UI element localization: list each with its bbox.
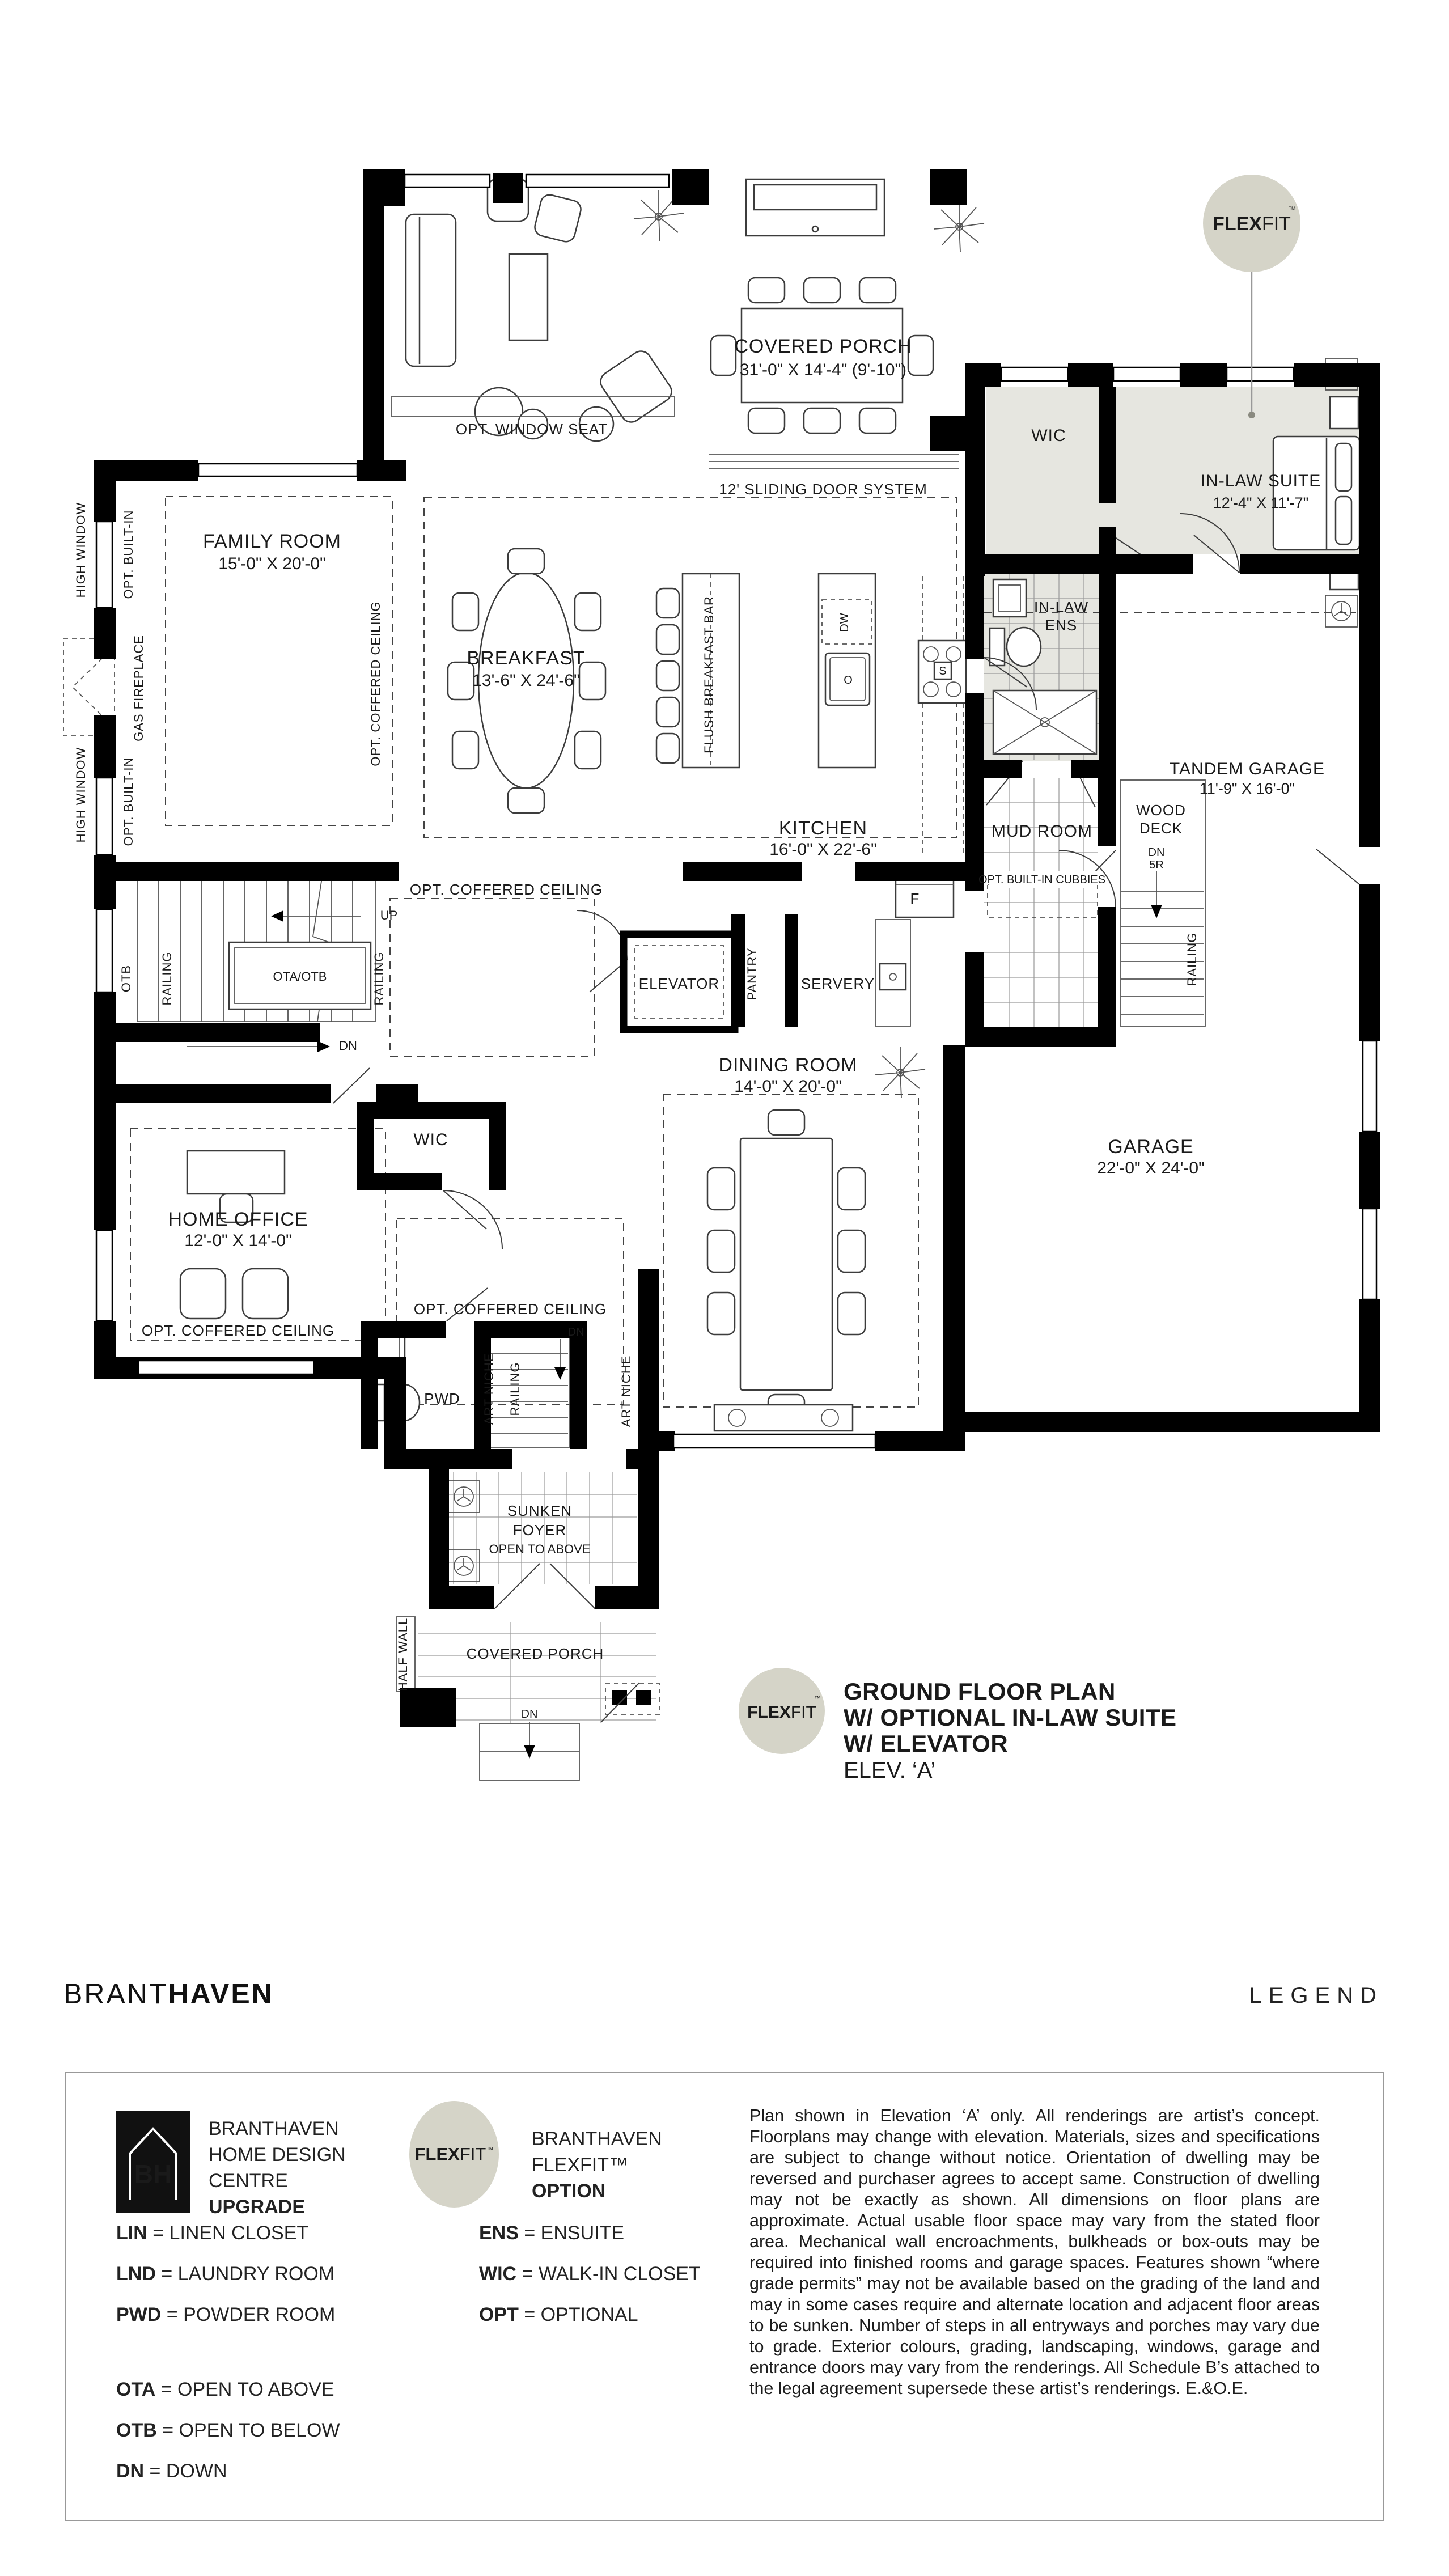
- label-coffered-dining: OPT. COFFERED CEILING: [414, 1300, 607, 1317]
- label-garage: GARAGE: [1108, 1136, 1193, 1158]
- label-in-law-ens-1: IN-LAW: [1034, 599, 1088, 616]
- label-servery: SERVERY: [801, 975, 875, 992]
- label-cubbies: OPT. BUILT-IN CUBBIES: [978, 874, 1105, 886]
- label-elevator: ELEVATOR: [639, 975, 719, 992]
- label-art-niche-2: ART NICHE: [619, 1355, 633, 1427]
- label-mud-room: MUD ROOM: [992, 822, 1092, 841]
- label-dn-porch: DN: [522, 1708, 538, 1721]
- abbr-ens: ENS = ENSUITE: [479, 2222, 624, 2244]
- title-line1: GROUND FLOOR PLAN: [844, 1678, 1116, 1705]
- label-foyer-1: SUNKEN: [507, 1502, 572, 1519]
- label-covered-porch-bottom: COVERED PORCH: [467, 1645, 604, 1662]
- label-flush-breakfast-bar: FLUSH BREAKFAST BAR: [702, 596, 716, 753]
- label-wic-main: WIC: [413, 1130, 448, 1149]
- brand-light: BRANT: [63, 1978, 168, 2010]
- label-railing-deck: RAILING: [1185, 932, 1199, 986]
- label-coffered-hall: OPT. COFFERED CEILING: [410, 881, 603, 898]
- abbr-lnd: LND = LAUNDRY ROOM: [116, 2263, 334, 2285]
- label-deck-5r: 5R: [1149, 859, 1164, 871]
- flexfit-option-line1: BRANTHAVEN: [532, 2126, 662, 2152]
- label-kitchen: KITCHEN: [779, 817, 867, 839]
- dim-garage: 22'-0" X 24'-0": [1097, 1159, 1205, 1177]
- label-gas-fireplace: GAS FIREPLACE: [132, 635, 146, 742]
- abbr-dn: DN = DOWN: [116, 2460, 227, 2482]
- bh-upgrade-label: BRANTHAVEN HOME DESIGN CENTRE UPGRADE: [209, 2116, 346, 2220]
- flexfit-badge-title: FLEXFIT: [747, 1703, 816, 1722]
- bh-upgrade-emphasis: UPGRADE: [209, 2194, 346, 2220]
- dim-dining-room: 14'-0" X 20'-0": [734, 1077, 842, 1096]
- label-pwd: PWD: [424, 1390, 460, 1407]
- label-sliding-door: 12' SLIDING DOOR SYSTEM: [719, 481, 927, 498]
- bh-upgrade-line2: HOME DESIGN: [209, 2142, 346, 2168]
- flexfit-title-tm: ™: [814, 1694, 821, 1702]
- label-pantry: PANTRY: [745, 947, 759, 1000]
- dim-tandem-garage: 11'-9" X 16'-0": [1200, 780, 1295, 797]
- label-opt-built-in-2: OPT. BUILT-IN: [121, 757, 135, 846]
- label-ota-otb: OTA/OTB: [273, 969, 327, 984]
- label-deck-dn: DN: [1149, 846, 1165, 859]
- dim-covered-porch-top: 31'-0" X 14'-4" (9'-10"): [740, 361, 906, 379]
- bh-logo-text: BH: [134, 2159, 172, 2189]
- label-high-window-2: HIGH WINDOW: [74, 747, 88, 843]
- label-in-law-suite: IN-LAW SUITE: [1201, 472, 1321, 490]
- abbr-lin: LIN = LINEN CLOSET: [116, 2222, 308, 2244]
- legal-disclaimer: Plan shown in Elevation ‘A’ only. All re…: [749, 2105, 1320, 2399]
- label-family-room: FAMILY ROOM: [203, 531, 341, 552]
- label-dn-basement: DN: [568, 1326, 584, 1338]
- abbr-wic: WIC = WALK-IN CLOSET: [479, 2263, 701, 2285]
- label-up: UP: [380, 908, 398, 922]
- label-home-office: HOME OFFICE: [168, 1209, 308, 1230]
- label-stove-s: S: [939, 665, 946, 677]
- label-in-law-ens-2: ENS: [1045, 617, 1077, 634]
- dim-breakfast: 13'-6" X 24'-6": [472, 671, 580, 690]
- label-wic-suite: WIC: [1031, 426, 1066, 445]
- label-half-wall: HALF WALL: [396, 1617, 410, 1691]
- label-otb: OTB: [119, 965, 133, 992]
- title-block: FLEXFIT ™ GROUND FLOOR PLAN W/ OPTIONAL …: [739, 1668, 1177, 1783]
- dim-in-law-suite: 12'-4" X 11'-7": [1213, 494, 1309, 511]
- flexfit-legend-tm: ™: [486, 2145, 493, 2154]
- dim-family-room: 15'-0" X 20'-0": [218, 554, 326, 573]
- label-opt-window-seat: OPT. WINDOW SEAT: [456, 421, 608, 438]
- bh-upgrade-line1: BRANTHAVEN: [209, 2116, 346, 2142]
- label-foyer-note: OPEN TO ABOVE: [489, 1542, 591, 1556]
- label-breakfast: BREAKFAST: [467, 647, 585, 669]
- label-wood-deck-1: WOOD: [1136, 802, 1186, 819]
- label-high-window-1: HIGH WINDOW: [74, 502, 88, 598]
- legend-title: LEGEND: [1249, 1983, 1384, 2009]
- abbr-ota: OTA = OPEN TO ABOVE: [116, 2379, 334, 2401]
- flexfit-badge-text: FLEXFIT: [1213, 213, 1291, 235]
- dim-home-office: 12'-0" X 14'-0": [184, 1231, 292, 1250]
- abbr-pwd: PWD = POWDER ROOM: [116, 2304, 335, 2326]
- flexfit-tm: ™: [1288, 205, 1296, 214]
- label-coffered-family: OPT. COFFERED CEILING: [368, 601, 383, 766]
- bh-upgrade-line3: CENTRE: [209, 2168, 346, 2194]
- label-railing-stairs-left: RAILING: [160, 951, 174, 1005]
- title-line3: W/ ELEVATOR: [844, 1730, 1008, 1757]
- porch-entry-steps: [480, 1722, 579, 1780]
- label-dining-room: DINING ROOM: [718, 1054, 857, 1076]
- label-fridge-f: F: [910, 890, 920, 907]
- flexfit-option-label: BRANTHAVEN FLEXFIT™ OPTION: [532, 2126, 662, 2204]
- flexfit-legend-b: FLEX: [415, 2144, 460, 2164]
- floorplan-drawing: FLEXFIT ™ OPT. WINDOW SEAT COVERED PORCH…: [0, 0, 1449, 1831]
- label-tandem-garage: TANDEM GARAGE: [1170, 760, 1325, 778]
- bh-house-icon: BH: [116, 2111, 190, 2213]
- label-dn-stairs: DN: [339, 1039, 357, 1053]
- title-line2: W/ OPTIONAL IN-LAW SUITE: [844, 1704, 1177, 1731]
- abbr-opt: OPT = OPTIONAL: [479, 2304, 638, 2326]
- bh-home-design-logo: BH: [116, 2111, 190, 2213]
- brand-bold: HAVEN: [168, 1978, 273, 2010]
- label-dw: DW: [838, 613, 851, 632]
- flexfit-legend-badge: FLEXFIT™: [409, 2101, 499, 2208]
- title-line4: ELEV. ‘A’: [844, 1758, 935, 1783]
- branthaven-logo: BRANTHAVEN: [63, 1977, 274, 2010]
- label-coffered-office: OPT. COFFERED CEILING: [142, 1322, 334, 1339]
- label-covered-porch-top: COVERED PORCH: [734, 336, 912, 357]
- label-art-niche-1: ART NICHE: [482, 1353, 496, 1425]
- flexfit-legend-l: FIT: [460, 2144, 486, 2164]
- label-sink-o: O: [844, 674, 853, 687]
- label-wood-deck-2: DECK: [1139, 820, 1183, 837]
- flexfit-option-emphasis: OPTION: [532, 2178, 662, 2204]
- label-railing-stairs-right: RAILING: [372, 951, 386, 1005]
- label-railing-basement: RAILING: [508, 1362, 522, 1416]
- flexfit-option-line2: FLEXFIT™: [532, 2152, 662, 2178]
- label-opt-built-in-1: OPT. BUILT-IN: [121, 510, 135, 599]
- dim-kitchen: 16'-0" X 22'-6": [769, 840, 877, 859]
- floorplan-page: FLEXFIT ™ OPT. WINDOW SEAT COVERED PORCH…: [0, 0, 1449, 2576]
- label-foyer-2: FOYER: [513, 1522, 567, 1539]
- abbr-otb: OTB = OPEN TO BELOW: [116, 2420, 340, 2442]
